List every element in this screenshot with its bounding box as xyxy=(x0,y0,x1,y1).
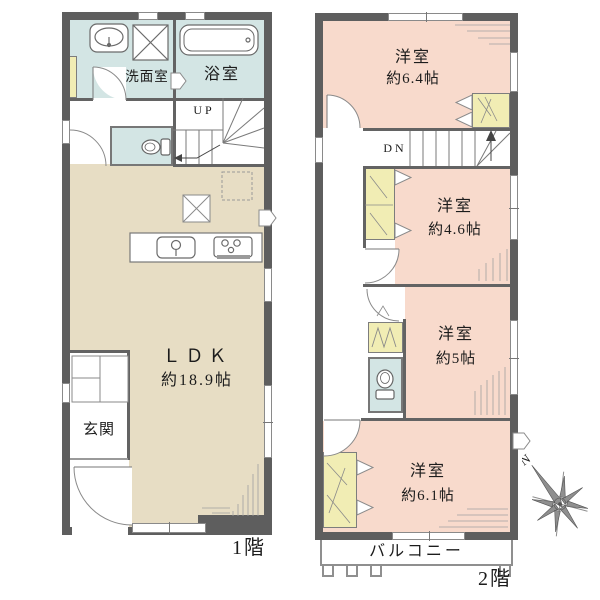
bedroom1-name: 洋室 xyxy=(353,49,473,67)
kitchen-counter xyxy=(130,233,262,262)
closet1-doors xyxy=(456,95,472,127)
window-right-b2 xyxy=(510,175,518,240)
sink-icon xyxy=(90,24,128,52)
refrigerator-space xyxy=(183,195,210,222)
toilet-icon-2f xyxy=(376,370,394,399)
stairs-down-label: DN xyxy=(373,142,417,156)
bathtub-icon xyxy=(180,25,258,55)
stairs-up-label: UP xyxy=(182,104,226,118)
window-right-b1 xyxy=(510,52,518,92)
bathroom-label: 浴室 xyxy=(177,66,267,84)
window-right-2 xyxy=(264,385,272,458)
sloped-ceiling-hatch-bedroom2 xyxy=(479,249,507,281)
bedroom3-door-arc xyxy=(367,289,399,321)
balcony: バルコニー xyxy=(320,540,513,566)
floor2-label: 2階 xyxy=(464,568,526,591)
closet2-hanger-marks xyxy=(365,176,393,235)
bedroom1-size: 約6.4帖 xyxy=(353,71,473,88)
floor1-label: 1階 xyxy=(218,537,280,560)
sloped-ceiling-hatch-bedroom3 xyxy=(475,367,505,415)
closet1-hanger-marks xyxy=(478,97,497,123)
ldk-name-label: ＬＤＫ xyxy=(117,346,277,367)
bedroom2-name: 洋室 xyxy=(405,198,505,216)
window-left-2 xyxy=(62,383,70,403)
door-marker-right-1f xyxy=(259,210,276,226)
closet4-hanger-marks xyxy=(327,463,350,523)
window-bottom-1 xyxy=(132,523,206,533)
balcony-tooth-3 xyxy=(370,566,382,577)
toilet-icon-1f xyxy=(142,139,170,155)
floor-plan-1: 洗面室 浴室 UP ＬＤＫ 約18.9帖 玄関 xyxy=(62,12,272,535)
bedroom4-size: 約6.1帖 xyxy=(368,488,488,505)
window-right-b3 xyxy=(510,320,518,395)
bedroom4-door-arc xyxy=(324,420,360,456)
stove-icon xyxy=(214,237,252,259)
washer-pan-icon xyxy=(133,25,168,60)
ldk-size-label: 約18.9帖 xyxy=(117,372,277,390)
floor-plan-2: 洋室 約6.4帖 DN 洋室 約4.6帖 洋室 約5帖 洋室 約6.1帖 xyxy=(315,13,518,540)
stairs-2f xyxy=(410,130,510,166)
window-bottom-2f xyxy=(392,532,465,540)
stairs-down-arrow xyxy=(486,130,496,141)
sloped-ceiling-hatch-bedroom4 xyxy=(439,509,508,527)
pantry-dashed-space xyxy=(222,172,252,200)
balcony-tooth-1 xyxy=(322,566,334,577)
sloped-ceiling-hatch-bedroom1 xyxy=(455,25,510,44)
window-right-1 xyxy=(264,268,272,302)
window-top-2f xyxy=(388,13,463,21)
bedroom3-size: 約5帖 xyxy=(406,351,506,368)
compass: N xyxy=(522,442,598,542)
kitchen-sink-icon xyxy=(157,237,195,258)
sloped-ceiling-hatch-ldk xyxy=(202,464,258,516)
bedroom2-size: 約4.6帖 xyxy=(405,222,505,239)
window-top-1 xyxy=(138,12,158,20)
entrance-label: 玄関 xyxy=(70,422,128,439)
balcony-tooth-2 xyxy=(346,566,358,577)
closet3-hanger-marks xyxy=(372,328,396,347)
window-top-2 xyxy=(185,12,205,20)
stairs-up-arrow xyxy=(174,154,182,162)
window-left-1 xyxy=(62,120,70,144)
entrance-door-arc xyxy=(74,467,132,525)
bedroom1-door-arc xyxy=(327,95,360,128)
bedroom3-name: 洋室 xyxy=(406,326,506,344)
bedroom4-name: 洋室 xyxy=(368,463,488,481)
bedroom2-door-arc xyxy=(365,249,399,283)
balcony-label: バルコニー xyxy=(322,543,511,561)
window-left-2f xyxy=(315,137,323,163)
hallway-door-arc xyxy=(70,130,106,166)
